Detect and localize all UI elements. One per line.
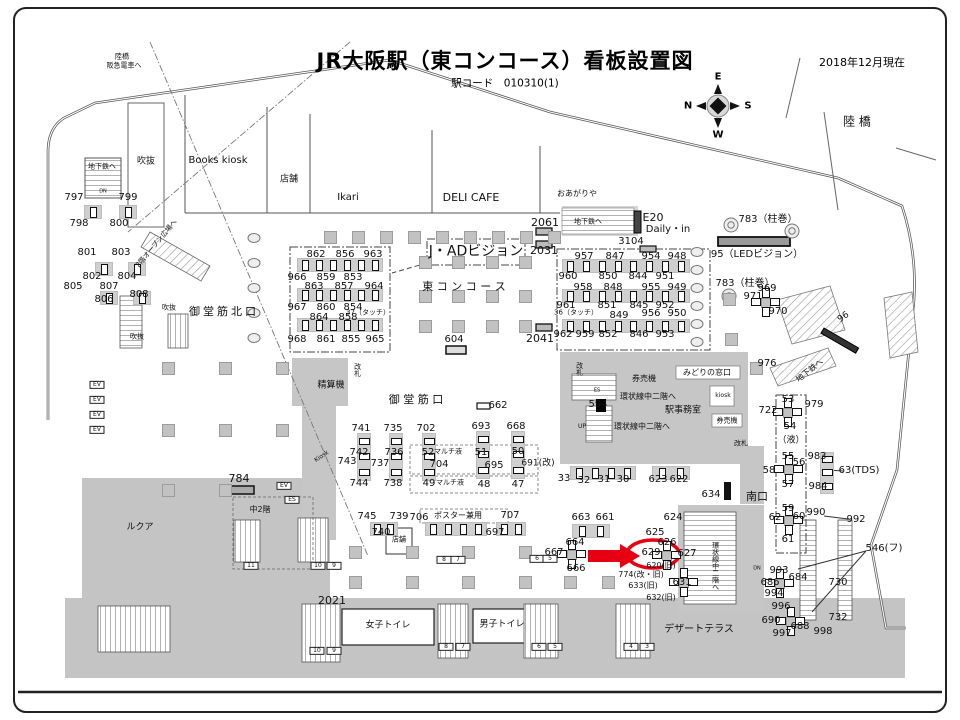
map-label: kiosk [715, 393, 730, 399]
boxed-label: ES [285, 496, 300, 504]
pillar [464, 231, 477, 244]
pillar [520, 231, 533, 244]
map-label: 745 [357, 512, 376, 523]
map-label: デザートテラス [664, 625, 734, 636]
map-label: 店舗 [280, 175, 298, 184]
sign-box-icon [90, 207, 97, 218]
pillar [462, 576, 475, 589]
map-label: 962 [553, 330, 572, 341]
map-label: 949 [667, 283, 686, 294]
map-label: 863 [304, 282, 323, 293]
pillar [723, 293, 736, 306]
sign-box-icon [359, 469, 370, 476]
pillar [436, 231, 449, 244]
map-label: 684 [788, 573, 807, 584]
map-label: 706 [409, 513, 428, 524]
map-label: 店舗 [392, 536, 406, 543]
map-label: 594 [588, 400, 607, 411]
map-label: 58 [763, 466, 776, 477]
sign-box-icon [359, 438, 370, 445]
map-label: 976 [757, 359, 776, 370]
map-label: 990 [806, 508, 825, 519]
map-label: 996 [771, 602, 790, 613]
map-label: 960 [558, 272, 577, 283]
map-label: 864 [309, 313, 328, 324]
map-label: 697 [485, 528, 504, 539]
map-label: 964 [364, 282, 383, 293]
map-label: 62 [769, 513, 782, 524]
sign-box-icon [372, 260, 379, 271]
map-label: おあがりや [557, 190, 597, 198]
map-label: 51 [475, 448, 488, 459]
map-label: ルクア [126, 523, 153, 532]
boxed-label: 7 [456, 643, 471, 651]
map-label: 61 [782, 535, 795, 546]
compass-east: E [715, 72, 722, 83]
sign-box-icon [478, 436, 489, 443]
map-label: 798 [69, 219, 88, 230]
map-label: 57 [782, 480, 795, 491]
pillar [564, 576, 577, 589]
pillar [486, 320, 499, 333]
map-label: DN [99, 189, 107, 194]
map-label: E20 [643, 212, 664, 224]
pillar [276, 424, 289, 437]
map-label: 979 [804, 400, 823, 411]
map-label: 704 [429, 460, 448, 471]
map-label: マルチ液 [436, 479, 464, 486]
map-label: 東 コ ン コ ー ス [422, 281, 505, 293]
map-label: 624 [663, 513, 682, 524]
map-label: 848 [603, 283, 622, 294]
map-label: 629 [641, 548, 660, 559]
sign-box-icon [101, 264, 108, 275]
pillar [548, 231, 561, 244]
map-label: 858 [338, 313, 357, 324]
sign-box-icon [513, 436, 524, 443]
sign-box-icon [515, 524, 522, 535]
boxed-label: 5 [543, 555, 558, 563]
map-label: 56 [793, 458, 806, 469]
map-label: 862 [306, 250, 325, 261]
map-label: ES [594, 388, 600, 393]
map-label: 846 [629, 330, 648, 341]
map-label: 48 [478, 480, 491, 491]
boxed-label: 4 [624, 643, 639, 651]
boxed-label: EV [90, 411, 105, 419]
map-label: 740 [371, 528, 390, 539]
boxed-label: 10 [310, 647, 325, 655]
boxed-label: 7 [451, 556, 466, 564]
boxed-label: 6 [532, 643, 547, 651]
map-label: 844 [628, 272, 647, 283]
map-label: 634 [701, 490, 720, 501]
map-label: 52 [422, 448, 435, 459]
map-label: 744 [349, 479, 368, 490]
pillar [219, 484, 232, 497]
sign-box-icon [358, 290, 365, 301]
compass-north: N [684, 101, 692, 112]
pillar [276, 362, 289, 375]
map-label: 783（柱巻） [738, 215, 797, 226]
sign-box-icon [822, 469, 833, 476]
boxed-label: 3 [640, 643, 655, 651]
sign-box-icon [597, 526, 604, 537]
map-label: 御堂筋北口 [189, 306, 259, 318]
map-label: 陸橋 [115, 53, 129, 60]
map-date: 2018年12月現在 [819, 54, 905, 70]
map-label: 971 [743, 292, 762, 303]
map-label: 阪急電車へ [107, 62, 142, 69]
map-label: 47 [512, 480, 525, 491]
compass-west: W [712, 130, 723, 141]
pillar [349, 546, 362, 559]
boxed-label: 10 [311, 562, 326, 570]
map-label: 666 [566, 564, 585, 575]
sign-bar [425, 522, 487, 536]
sign-box-icon [358, 320, 365, 331]
map-label: マルチ液 [434, 448, 462, 455]
led-vision-95-bar [718, 237, 790, 246]
map-label: 956 [641, 309, 660, 320]
map-label: 801 [77, 248, 96, 259]
sign-box-icon [344, 260, 351, 271]
pillar [408, 231, 421, 244]
map-label: 807 [99, 282, 118, 293]
map-label: 632(旧) [646, 594, 676, 602]
map-label: 駅事務室 [665, 406, 701, 415]
boxed-label: EV [90, 396, 105, 404]
map-label: 953 [655, 330, 674, 341]
map-label: 849 [609, 311, 628, 322]
map-label: Daily・in [646, 225, 690, 236]
map-label: 707 [500, 511, 519, 522]
compass-south: S [744, 101, 751, 112]
sign-box-icon [302, 260, 309, 271]
map-label: 環状線中二階へ [711, 542, 718, 591]
map-label: 改札 [734, 440, 748, 447]
sign-box-icon [330, 260, 337, 271]
map-label: ポスター兼用 [434, 512, 482, 520]
map-label: DN [753, 566, 761, 571]
station-code: 駅コード 010310(1) [451, 76, 558, 91]
map-label: 808 [129, 290, 148, 301]
pillar [324, 231, 337, 244]
map-label: 806 [94, 295, 113, 306]
map-label: 805 [63, 282, 82, 293]
map-label: 965 [365, 335, 384, 346]
map-label: 950 [667, 309, 686, 320]
map-label: 968 [287, 335, 306, 346]
map-label: 797 [64, 193, 83, 204]
map-label: 女子トイレ [365, 621, 410, 630]
map-label: 738 [383, 479, 402, 490]
boxed-label: 8 [437, 556, 452, 564]
boxed-label: EV [277, 482, 292, 490]
map-label: 2061 [531, 217, 559, 229]
map-label: 741 [351, 424, 370, 435]
station-signage-map: 784 [0, 0, 960, 720]
map-label: 800 [109, 219, 128, 230]
boxed-label: EV [90, 426, 105, 434]
map-label: 精算機 [317, 381, 344, 390]
map-label: 774(改・旧) [618, 571, 664, 579]
map-label: 967 [287, 303, 306, 314]
map-label: 958 [573, 283, 592, 294]
map-label: 852 [598, 330, 617, 341]
map-label: 南口 [746, 491, 768, 503]
pillar [380, 231, 393, 244]
map-label: 2041 [526, 333, 554, 345]
map-label: 30 [617, 475, 630, 486]
map-label: Books kiosk [189, 156, 248, 167]
map-label: 吹抜 [162, 304, 176, 311]
sign-box-icon [391, 438, 402, 445]
map-label: 2021 [318, 595, 346, 607]
map-label: 702 [416, 424, 435, 435]
map-label: 690 [761, 616, 780, 627]
pillar [519, 576, 532, 589]
sign-box-icon [445, 524, 452, 535]
map-label: 改札 [575, 362, 582, 376]
sign-box-icon [475, 524, 482, 535]
map-label: 券売機 [717, 417, 738, 424]
map-label: 券売機 [632, 375, 656, 383]
map-label: 改札 [353, 363, 360, 377]
map-label: 中2階 [249, 506, 270, 514]
sign-box-icon [430, 524, 437, 535]
map-label: 959 [575, 330, 594, 341]
sign-box-icon [330, 320, 337, 331]
map-label: 730 [828, 578, 847, 589]
map-label: 955 [641, 283, 660, 294]
pillar [725, 333, 738, 346]
map-label: 3104 [618, 237, 643, 248]
boxed-label: 11 [244, 562, 259, 570]
sign-box-icon [125, 207, 132, 218]
sign-box-icon [372, 320, 379, 331]
map-label: Ikari [337, 193, 359, 204]
map-label: 857 [334, 282, 353, 293]
pillar [352, 231, 365, 244]
map-label: 963 [363, 250, 382, 261]
map-label: 856 [335, 250, 354, 261]
sign-box-icon [579, 526, 586, 537]
map-label: 993 [769, 566, 788, 577]
boxed-label: 9 [327, 647, 342, 655]
map-label: 54 [784, 422, 797, 433]
map-label: みどりの窓口 [683, 369, 731, 377]
sign-box-icon [391, 469, 402, 476]
map-label: 735 [383, 424, 402, 435]
map-label: DELI CAFE [443, 192, 500, 204]
sign-box-icon [460, 524, 467, 535]
map-label: 691(改) [521, 459, 554, 468]
map-label: 546(フ) [866, 544, 903, 555]
map-label: 970 [768, 307, 787, 318]
map-label: 662 [488, 401, 507, 412]
page-title: JR大阪駅（東コンコース）看板設置図 [317, 45, 694, 75]
map-label: 855 [341, 335, 360, 346]
sign-box-icon [678, 321, 685, 332]
map-label: 799 [118, 193, 137, 204]
boxed-label: EV [90, 381, 105, 389]
map-label: 50 [512, 447, 525, 458]
boxed-label: 9 [327, 562, 342, 570]
map-label: 686 [760, 578, 779, 589]
pillar [492, 231, 505, 244]
map-label: 陸 橋 [843, 116, 871, 129]
map-label: 33 [558, 474, 571, 485]
pillar [219, 362, 232, 375]
map-label: 992 [846, 515, 865, 526]
pillar [519, 320, 532, 333]
pillar [162, 424, 175, 437]
map-label: 49 [423, 479, 436, 490]
map-label: 732 [828, 613, 847, 624]
map-label: 861 [316, 335, 335, 346]
map-label: 623 [648, 475, 667, 486]
map-label: 994 [764, 589, 783, 600]
map-label: 633(旧) [628, 582, 658, 590]
map-label: （液） [777, 436, 804, 445]
map-label: 743 [337, 457, 356, 468]
pillar [452, 320, 465, 333]
map-label: 803 [111, 248, 130, 259]
pillar [406, 546, 419, 559]
map-label: 695 [484, 461, 503, 472]
map-label: 957 [574, 252, 593, 263]
map-label: 661 [595, 513, 614, 524]
map-label: 31 [598, 475, 611, 486]
map-label: 847 [605, 252, 624, 263]
pillar [349, 576, 362, 589]
map-label: 63(TDS) [839, 466, 880, 477]
map-label: UP [578, 424, 586, 430]
sign-box-icon [316, 260, 323, 271]
map-label: 環状線中二階へ [620, 393, 676, 401]
pillar [519, 290, 532, 303]
map-label: 627 [677, 549, 696, 560]
pillar [219, 424, 232, 437]
map-label: 2031 [530, 245, 558, 257]
map-label: 地下鉄へ [574, 218, 602, 225]
map-label: 948 [667, 252, 686, 263]
map-label: 804 [117, 272, 136, 283]
pillar [602, 576, 615, 589]
pillar [162, 362, 175, 375]
map-label: 984 [808, 482, 827, 493]
pillar [406, 576, 419, 589]
map-label: 622 [669, 475, 688, 486]
map-label: 吹抜 [137, 157, 155, 166]
map-label: 604 [444, 335, 463, 346]
map-label: 32 [578, 476, 591, 487]
map-label: 御 堂 筋 口 [389, 394, 444, 406]
map-label: 668 [506, 422, 525, 433]
map-label: 631 [672, 578, 691, 589]
map-label: 地下鉄へ [88, 163, 116, 170]
map-label: 53 [782, 395, 795, 406]
pillar [162, 484, 175, 497]
map-label: 737 [370, 459, 389, 470]
map-label: 吹抜 [130, 333, 144, 340]
sign-box-icon [302, 320, 309, 331]
map-label: 688 [790, 622, 809, 633]
boxed-label: 8 [439, 643, 454, 651]
map-label: 60 [793, 512, 806, 523]
sign-box-icon [424, 438, 435, 445]
map-label: 951 [655, 272, 674, 283]
map-label: 739 [389, 512, 408, 523]
map-label: 736 [384, 448, 403, 459]
map-label: 95（LEDビジョン） [711, 250, 803, 261]
boxed-label: 5 [548, 643, 563, 651]
map-label: 722 [758, 406, 777, 417]
map-label: 664 [565, 538, 584, 549]
map-label: 998 [813, 627, 832, 638]
map-label: 環状線中二階へ [614, 423, 670, 431]
map-label: 663 [571, 513, 590, 524]
map-label: 983 [807, 452, 826, 463]
map-label: 693 [471, 422, 490, 433]
sign-box-icon [358, 260, 365, 271]
map-label: 850 [598, 272, 617, 283]
map-label: 36（タッチ） [554, 309, 598, 316]
map-label: J・ADビジョン [429, 245, 524, 260]
map-label: 男子トイレ [479, 620, 524, 629]
map-label: 954 [641, 252, 660, 263]
pillar [419, 320, 432, 333]
map-label: 997 [772, 629, 791, 640]
